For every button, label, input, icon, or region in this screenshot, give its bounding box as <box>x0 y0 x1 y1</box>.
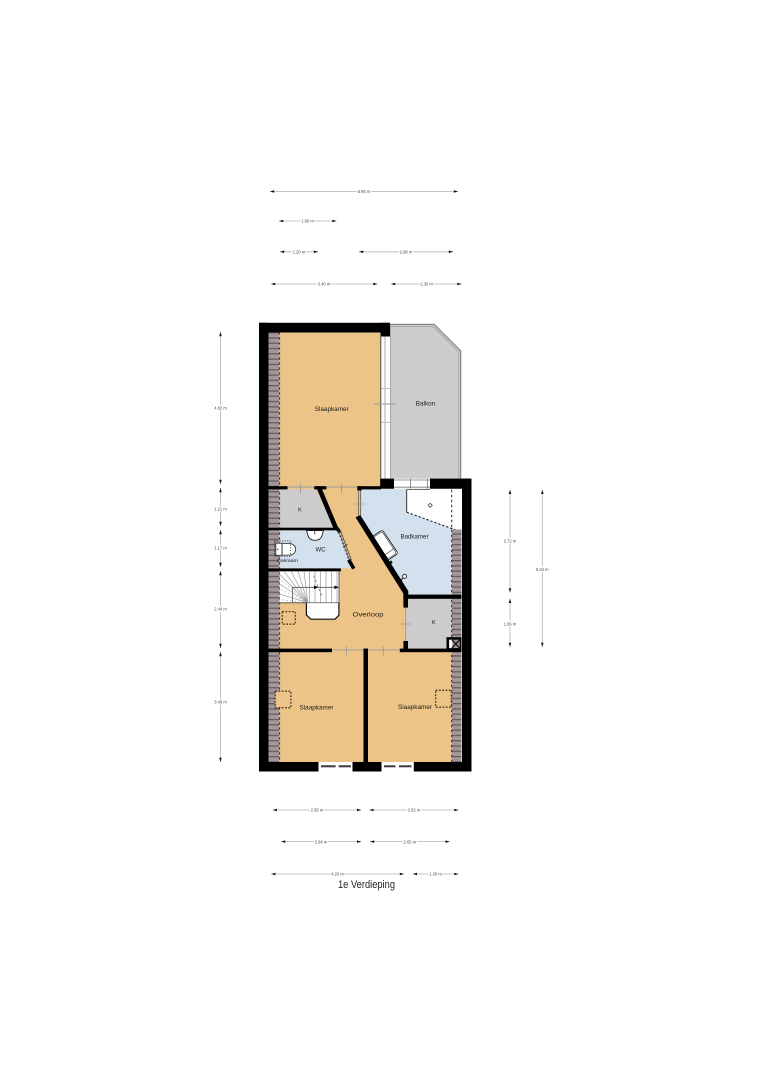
svg-text:1.17 m: 1.17 m <box>214 546 227 551</box>
svg-text:2.72 m: 2.72 m <box>504 539 517 544</box>
svg-text:Slaapkamer: Slaapkamer <box>398 704 433 711</box>
svg-text:Badkamer: Badkamer <box>401 533 430 540</box>
svg-text:5.95 m: 5.95 m <box>358 189 371 194</box>
svg-text:1.30 m: 1.30 m <box>429 872 442 877</box>
svg-text:WC: WC <box>316 546 326 553</box>
svg-text:2.65 m: 2.65 m <box>404 839 417 844</box>
svg-text:Overloop: Overloop <box>353 611 384 618</box>
svg-text:Slaapkamer: Slaapkamer <box>315 406 350 413</box>
svg-text:4.20 m: 4.20 m <box>331 872 344 877</box>
svg-text:K: K <box>432 620 436 626</box>
svg-text:4.82 m: 4.82 m <box>214 406 227 411</box>
svg-text:2.95 m: 2.95 m <box>311 808 324 813</box>
svg-text:1.21 m: 1.21 m <box>214 507 227 512</box>
svg-text:1.80 m: 1.80 m <box>301 219 314 224</box>
svg-text:1.66 m: 1.66 m <box>504 621 517 626</box>
svg-text:2.30 m: 2.30 m <box>420 282 433 287</box>
svg-text:1e Verdieping: 1e Verdieping <box>338 879 395 891</box>
svg-text:5.04 m: 5.04 m <box>536 567 549 572</box>
svg-text:3.49 m: 3.49 m <box>214 700 227 705</box>
svg-text:Balkon: Balkon <box>416 401 436 408</box>
svg-text:K: K <box>298 508 302 514</box>
svg-text:Slaapkamer: Slaapkamer <box>300 705 335 712</box>
svg-text:2.64 m: 2.64 m <box>315 839 328 844</box>
svg-text:2.98 m: 2.98 m <box>400 250 413 255</box>
svg-text:Dakraam: Dakraam <box>277 558 298 563</box>
svg-text:2.82 m: 2.82 m <box>408 808 421 813</box>
svg-text:1.20 m: 1.20 m <box>293 250 306 255</box>
svg-text:2.44 m: 2.44 m <box>214 607 227 612</box>
svg-text:3.40 m: 3.40 m <box>318 282 331 287</box>
